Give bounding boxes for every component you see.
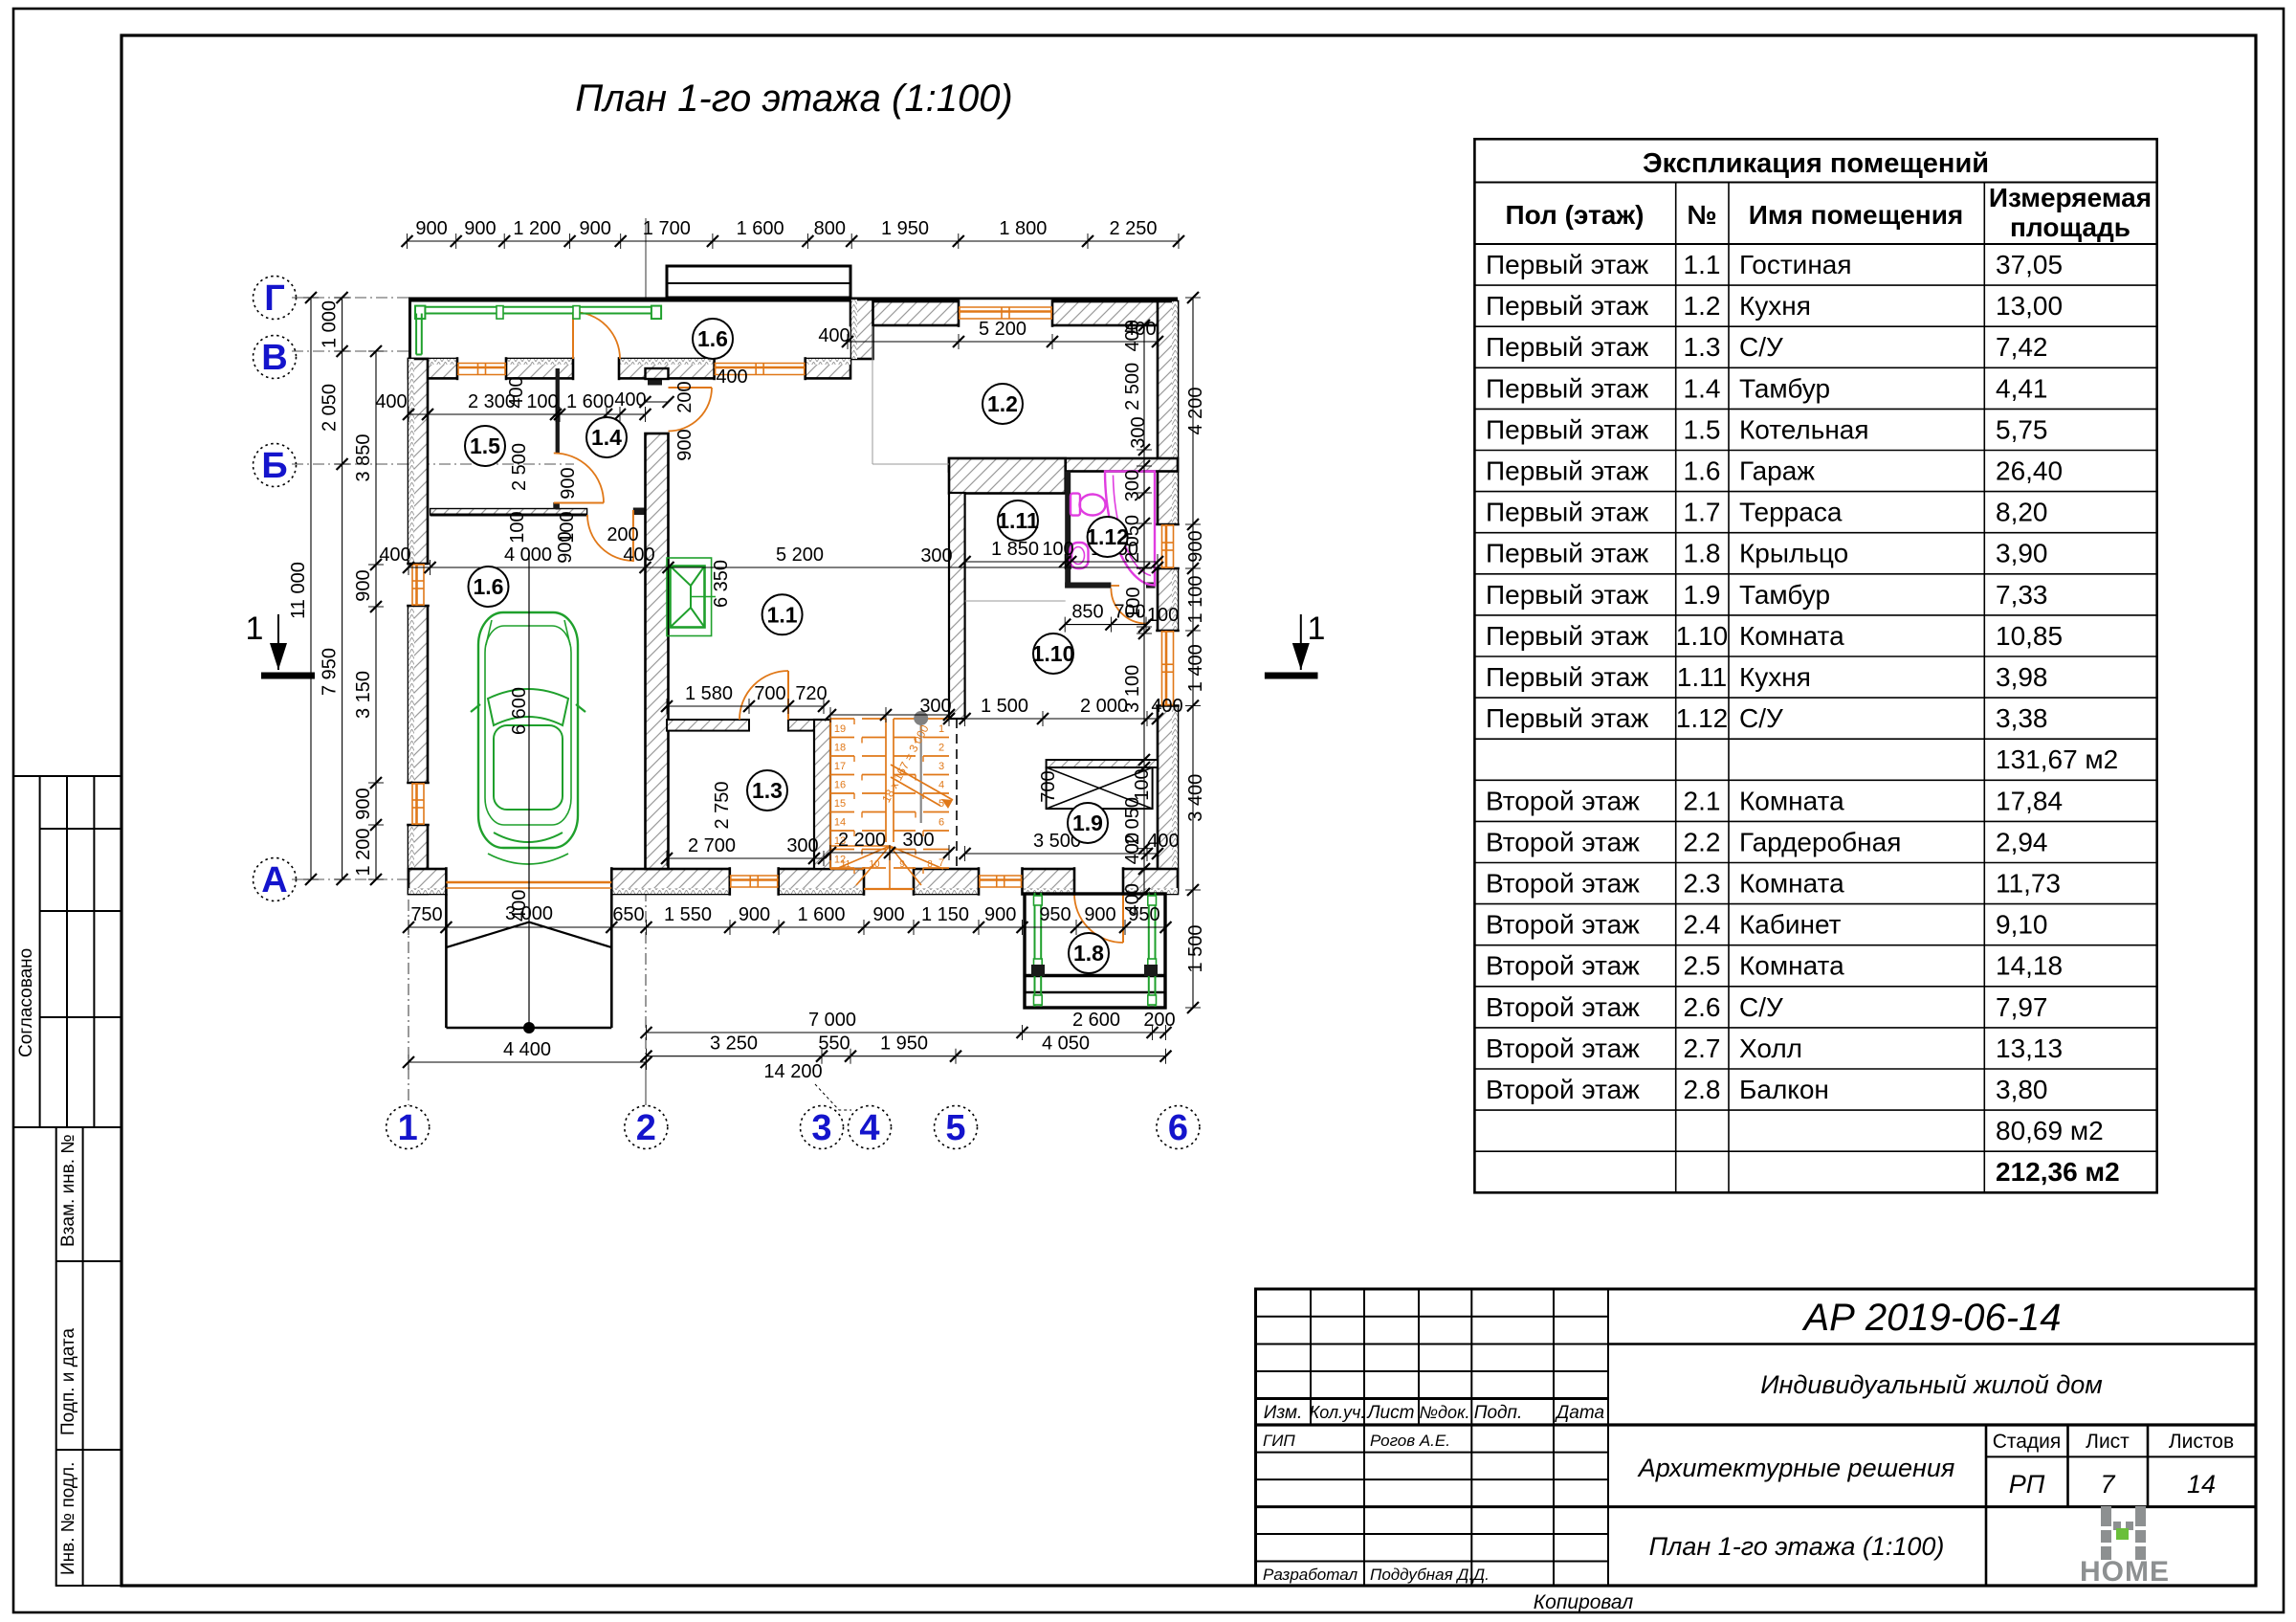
svg-text:План 1-го этажа (1:100): План 1-го этажа (1:100) (1649, 1532, 1945, 1561)
svg-text:Пол (этаж): Пол (этаж) (1506, 200, 1645, 230)
svg-text:1 200: 1 200 (513, 218, 561, 239)
svg-text:2.2: 2.2 (1684, 827, 1721, 856)
svg-text:300: 300 (1128, 416, 1149, 448)
svg-text:14: 14 (2187, 1470, 2216, 1499)
svg-text:300: 300 (920, 545, 952, 567)
svg-text:Первый этаж: Первый этаж (1486, 250, 1648, 279)
svg-text:1.1: 1.1 (767, 602, 798, 627)
svg-text:100: 100 (1042, 539, 1073, 560)
svg-text:300: 300 (919, 696, 951, 717)
svg-text:Первый этаж: Первый этаж (1486, 703, 1648, 733)
svg-text:400: 400 (614, 389, 646, 411)
svg-text:Подп.: Подп. (1474, 1403, 1523, 1423)
svg-text:15: 15 (834, 798, 846, 810)
svg-text:850: 850 (1071, 602, 1103, 623)
svg-text:900: 900 (415, 218, 447, 239)
svg-text:80,69 м2: 80,69 м2 (1996, 1116, 2104, 1145)
svg-text:1.3: 1.3 (752, 778, 783, 803)
svg-text:300: 300 (902, 830, 934, 851)
svg-text:16: 16 (834, 780, 846, 791)
svg-text:2.3: 2.3 (1684, 869, 1721, 899)
svg-text:3,90: 3,90 (1996, 539, 2048, 568)
svg-text:300: 300 (786, 835, 818, 856)
svg-text:Г: Г (264, 278, 285, 319)
svg-text:900: 900 (674, 429, 695, 460)
svg-text:400: 400 (623, 544, 654, 566)
svg-text:С/У: С/У (1739, 992, 1783, 1022)
svg-text:212,36 м2: 212,36 м2 (1996, 1157, 2120, 1187)
svg-text:Второй этаж: Второй этаж (1486, 1033, 1640, 1063)
svg-text:11,73: 11,73 (1996, 869, 2061, 899)
svg-text:1 000: 1 000 (320, 300, 341, 348)
svg-text:Первый этаж: Первый этаж (1486, 498, 1648, 527)
svg-text:Лист: Лист (1366, 1403, 1415, 1423)
svg-text:Копировал: Копировал (1534, 1591, 1634, 1613)
svg-text:3 850: 3 850 (353, 433, 374, 481)
svg-text:1.6: 1.6 (1684, 456, 1721, 486)
svg-text:Комната: Комната (1739, 869, 1844, 899)
svg-text:1.12: 1.12 (1676, 703, 1729, 733)
svg-text:3,98: 3,98 (1996, 662, 2048, 692)
svg-text:700: 700 (754, 683, 785, 704)
svg-text:2,94: 2,94 (1996, 827, 2048, 856)
svg-text:900: 900 (353, 788, 374, 819)
svg-text:300: 300 (1122, 470, 1143, 501)
svg-text:550: 550 (818, 1033, 850, 1055)
svg-text:1: 1 (246, 611, 264, 647)
svg-text:9: 9 (899, 859, 905, 870)
svg-text:Первый этаж: Первый этаж (1486, 332, 1648, 362)
svg-text:1 850: 1 850 (991, 539, 1039, 560)
svg-text:100: 100 (1123, 587, 1144, 618)
svg-text:1.10: 1.10 (1032, 641, 1075, 666)
svg-text:Комната: Комната (1739, 951, 1844, 981)
svg-text:650: 650 (612, 904, 644, 925)
svg-text:1 800: 1 800 (999, 218, 1047, 239)
svg-text:2.1: 2.1 (1684, 786, 1721, 815)
svg-text:900: 900 (353, 569, 374, 601)
svg-text:Гостиная: Гостиная (1739, 250, 1852, 279)
svg-text:Второй этаж: Второй этаж (1486, 827, 1640, 856)
svg-text:АР 2019-06-14: АР 2019-06-14 (1801, 1297, 2061, 1339)
svg-text:8: 8 (927, 859, 933, 870)
svg-text:37,05: 37,05 (1996, 250, 2063, 279)
svg-text:1.2: 1.2 (1684, 291, 1721, 321)
svg-text:2.4: 2.4 (1684, 910, 1721, 940)
svg-text:Комната: Комната (1739, 621, 1844, 651)
svg-text:400: 400 (1124, 319, 1156, 340)
svg-text:Листов: Листов (2169, 1431, 2234, 1453)
svg-text:3,80: 3,80 (1996, 1075, 2048, 1104)
svg-text:17,84: 17,84 (1996, 786, 2063, 815)
svg-text:5 200: 5 200 (776, 544, 824, 566)
svg-text:11: 11 (841, 859, 851, 870)
svg-text:950: 950 (1039, 904, 1071, 925)
svg-text:1 600: 1 600 (737, 218, 784, 239)
svg-text:Поддубная Д.Д.: Поддубная Д.Д. (1370, 1566, 1490, 1584)
svg-text:1 500: 1 500 (981, 696, 1028, 717)
svg-text:№: № (1687, 200, 1716, 230)
svg-text:5 200: 5 200 (979, 319, 1027, 340)
svg-text:4,41: 4,41 (1996, 373, 2048, 403)
svg-text:Взам. инв. №: Взам. инв. № (58, 1134, 78, 1247)
svg-text:Первый этаж: Первый этаж (1486, 291, 1648, 321)
svg-text:А: А (261, 860, 287, 900)
svg-text:100: 100 (526, 391, 558, 412)
svg-text:2 750: 2 750 (712, 781, 733, 829)
svg-text:Балкон: Балкон (1739, 1075, 1829, 1104)
svg-text:18: 18 (834, 743, 846, 754)
svg-text:400: 400 (375, 391, 407, 412)
svg-text:3 250: 3 250 (710, 1033, 758, 1055)
svg-text:Подп. и дата: Подп. и дата (58, 1328, 78, 1435)
svg-text:1 150: 1 150 (921, 904, 969, 925)
svg-text:2 700: 2 700 (688, 835, 736, 856)
svg-text:900: 900 (872, 904, 904, 925)
svg-text:2 600: 2 600 (1072, 1010, 1120, 1031)
svg-text:3 400: 3 400 (1185, 774, 1206, 822)
svg-text:Холл: Холл (1739, 1033, 1802, 1063)
svg-text:2 250: 2 250 (1109, 218, 1157, 239)
svg-text:2 500: 2 500 (1122, 363, 1143, 411)
svg-text:900: 900 (579, 218, 610, 239)
svg-text:Экспликация помещений: Экспликация помещений (1643, 148, 1989, 179)
svg-text:1 200: 1 200 (353, 828, 374, 876)
svg-text:10: 10 (869, 859, 880, 870)
svg-text:10,85: 10,85 (1996, 621, 2063, 651)
svg-text:1 550: 1 550 (664, 904, 712, 925)
svg-text:1 700: 1 700 (643, 218, 691, 239)
svg-text:2.7: 2.7 (1684, 1033, 1721, 1063)
svg-text:План 1-го этажа (1:100): План 1-го этажа (1:100) (575, 78, 1013, 120)
svg-text:400: 400 (379, 544, 410, 566)
svg-text:РП: РП (2009, 1470, 2045, 1499)
svg-text:Первый этаж: Первый этаж (1486, 662, 1648, 692)
svg-text:Гардеробная: Гардеробная (1739, 827, 1901, 856)
svg-text:200: 200 (607, 524, 638, 545)
svg-text:400: 400 (1147, 831, 1179, 852)
svg-text:1.5: 1.5 (1684, 414, 1721, 444)
svg-text:1.11: 1.11 (1677, 662, 1727, 692)
svg-text:Стадия: Стадия (1993, 1431, 2062, 1453)
svg-text:1 600: 1 600 (797, 904, 845, 925)
svg-text:131,67 м2: 131,67 м2 (1996, 744, 2118, 774)
svg-text:1 950: 1 950 (881, 218, 929, 239)
svg-text:Первый этаж: Первый этаж (1486, 456, 1648, 486)
svg-text:700: 700 (1038, 770, 1059, 802)
svg-text:900: 900 (464, 218, 496, 239)
svg-text:Второй этаж: Второй этаж (1486, 786, 1640, 815)
svg-text:Измеряемая: Измеряемая (1989, 183, 2152, 212)
svg-text:900: 900 (555, 531, 576, 563)
svg-text:2: 2 (938, 743, 944, 754)
svg-text:400: 400 (1122, 833, 1143, 864)
svg-text:Согласовано: Согласовано (16, 948, 36, 1057)
svg-text:1.4: 1.4 (1684, 373, 1721, 403)
svg-text:1: 1 (1308, 611, 1326, 647)
svg-text:Разработал: Разработал (1263, 1566, 1358, 1584)
svg-text:400: 400 (716, 367, 747, 388)
svg-text:3,38: 3,38 (1996, 703, 2048, 733)
svg-text:Имя помещения: Имя помещения (1749, 200, 1964, 230)
svg-text:200: 200 (1143, 1010, 1175, 1031)
svg-text:Второй этаж: Второй этаж (1486, 992, 1640, 1022)
svg-text:1.9: 1.9 (1684, 580, 1721, 610)
svg-text:Тамбур: Тамбур (1739, 373, 1830, 403)
svg-text:7,42: 7,42 (1996, 332, 2048, 362)
svg-text:950: 950 (1128, 904, 1159, 925)
svg-text:Изм.: Изм. (1264, 1403, 1303, 1423)
svg-text:Лист: Лист (2086, 1431, 2130, 1453)
svg-text:С/У: С/У (1739, 703, 1783, 733)
svg-text:6 350: 6 350 (711, 560, 732, 608)
svg-text:С/У: С/У (1739, 332, 1783, 362)
svg-text:1 600: 1 600 (566, 391, 614, 412)
svg-text:Котельная: Котельная (1739, 414, 1869, 444)
svg-text:1 500: 1 500 (1185, 924, 1206, 972)
svg-text:1.7: 1.7 (1684, 498, 1721, 527)
svg-text:2 050: 2 050 (320, 384, 341, 432)
svg-text:2.5: 2.5 (1684, 951, 1721, 981)
svg-text:Первый этаж: Первый этаж (1486, 580, 1648, 610)
svg-text:Второй этаж: Второй этаж (1486, 1075, 1640, 1104)
svg-text:Первый этаж: Первый этаж (1486, 373, 1648, 403)
svg-text:13,13: 13,13 (1996, 1033, 2063, 1063)
svg-text:Крыльцо: Крыльцо (1739, 539, 1848, 568)
svg-text:900: 900 (1185, 530, 1206, 562)
svg-text:6: 6 (938, 817, 944, 829)
svg-text:26,40: 26,40 (1996, 456, 2063, 486)
svg-text:7,97: 7,97 (1996, 992, 2048, 1022)
svg-text:9,10: 9,10 (1996, 910, 2048, 940)
svg-text:1.6: 1.6 (697, 326, 728, 351)
svg-text:19: 19 (834, 723, 846, 735)
svg-text:Кабинет: Кабинет (1739, 910, 1842, 940)
svg-text:1 100: 1 100 (1185, 575, 1206, 623)
svg-text:ГИП: ГИП (1263, 1432, 1295, 1450)
svg-text:14,18: 14,18 (1996, 951, 2063, 981)
svg-text:7: 7 (938, 857, 944, 869)
svg-text:Индивидуальный жилой дом: Индивидуальный жилой дом (1760, 1370, 2103, 1399)
svg-text:720: 720 (795, 683, 827, 704)
svg-text:7: 7 (2100, 1470, 2115, 1499)
svg-text:Архитектурные решения: Архитектурные решения (1637, 1454, 1955, 1482)
svg-text:2 000: 2 000 (1080, 696, 1128, 717)
svg-text:2.6: 2.6 (1684, 992, 1721, 1022)
svg-text:3 000: 3 000 (505, 903, 553, 924)
svg-text:Второй этаж: Второй этаж (1486, 951, 1640, 981)
svg-text:3 150: 3 150 (353, 671, 374, 719)
svg-text:Первый этаж: Первый этаж (1486, 414, 1648, 444)
svg-text:1 950: 1 950 (880, 1033, 928, 1055)
svg-text:4 000: 4 000 (504, 544, 552, 566)
svg-text:Терраса: Терраса (1739, 498, 1843, 527)
svg-text:200: 200 (674, 381, 695, 412)
svg-text:1.6: 1.6 (474, 574, 504, 599)
svg-text:800: 800 (814, 218, 846, 239)
svg-text:1: 1 (398, 1108, 418, 1148)
svg-text:Второй этаж: Второй этаж (1486, 910, 1640, 940)
svg-text:1.4: 1.4 (591, 425, 622, 450)
svg-text:750: 750 (410, 904, 442, 925)
svg-text:Рогов А.Е.: Рогов А.Е. (1370, 1432, 1450, 1450)
svg-text:8,20: 8,20 (1996, 498, 2048, 527)
svg-text:900: 900 (1084, 904, 1115, 925)
svg-text:100: 100 (507, 511, 528, 543)
svg-text:№док.: №док. (1420, 1403, 1470, 1422)
svg-text:2: 2 (636, 1108, 656, 1148)
svg-text:1.1: 1.1 (1684, 250, 1721, 279)
svg-text:Дата: Дата (1555, 1403, 1604, 1423)
svg-text:Кол.уч.: Кол.уч. (1310, 1403, 1366, 1422)
svg-text:4: 4 (938, 780, 944, 791)
svg-text:4: 4 (859, 1108, 879, 1148)
svg-text:1.9: 1.9 (1072, 811, 1103, 835)
svg-text:1.8: 1.8 (1684, 539, 1721, 568)
svg-text:площадь: площадь (2010, 212, 2130, 242)
svg-text:5: 5 (945, 1108, 965, 1148)
svg-text:1: 1 (938, 723, 944, 735)
svg-text:400: 400 (1151, 696, 1182, 717)
svg-text:7 950: 7 950 (320, 648, 341, 696)
svg-text:2.8: 2.8 (1684, 1075, 1721, 1104)
svg-text:1 580: 1 580 (685, 683, 733, 704)
svg-text:14 200: 14 200 (763, 1061, 822, 1082)
svg-text:11 000: 11 000 (288, 562, 309, 619)
svg-text:1 400: 1 400 (1185, 644, 1206, 692)
svg-text:4 200: 4 200 (1185, 387, 1206, 434)
svg-text:7 000: 7 000 (808, 1010, 856, 1031)
svg-text:5,75: 5,75 (1996, 414, 2048, 444)
svg-text:В: В (261, 338, 287, 378)
svg-text:1.5: 1.5 (470, 433, 500, 458)
svg-text:900: 900 (984, 904, 1016, 925)
svg-text:900: 900 (558, 467, 579, 499)
svg-text:1.10: 1.10 (1676, 621, 1729, 651)
svg-text:13,00: 13,00 (1996, 291, 2063, 321)
svg-text:6: 6 (1168, 1108, 1188, 1148)
svg-text:1.3: 1.3 (1684, 332, 1721, 362)
svg-text:100: 100 (1132, 768, 1153, 800)
svg-text:Первый этаж: Первый этаж (1486, 621, 1648, 651)
svg-text:6 600: 6 600 (509, 687, 530, 735)
svg-text:400: 400 (506, 376, 527, 408)
svg-text:3: 3 (811, 1108, 831, 1148)
svg-text:1.2: 1.2 (987, 391, 1018, 416)
svg-text:Тамбур: Тамбур (1739, 580, 1830, 610)
svg-text:14: 14 (834, 817, 846, 829)
svg-text:17: 17 (834, 761, 846, 772)
svg-text:7,33: 7,33 (1996, 580, 2048, 610)
svg-text:Первый этаж: Первый этаж (1486, 539, 1648, 568)
svg-text:Гараж: Гараж (1739, 456, 1815, 486)
svg-text:2 500: 2 500 (509, 443, 530, 491)
svg-text:Инв. № подл.: Инв. № подл. (58, 1462, 78, 1575)
svg-text:Комната: Комната (1739, 786, 1844, 815)
svg-text:2 200: 2 200 (838, 830, 886, 851)
svg-text:3: 3 (938, 761, 944, 772)
svg-text:Второй этаж: Второй этаж (1486, 869, 1640, 899)
svg-text:1.11: 1.11 (997, 508, 1039, 533)
svg-text:4 050: 4 050 (1042, 1033, 1090, 1055)
svg-text:4 400: 4 400 (503, 1039, 551, 1060)
svg-text:Кухня: Кухня (1739, 291, 1811, 321)
svg-text:900: 900 (739, 904, 770, 925)
svg-text:HOME: HOME (2080, 1556, 2170, 1588)
svg-text:400: 400 (818, 325, 850, 346)
svg-text:Кухня: Кухня (1739, 662, 1811, 692)
svg-text:100: 100 (1147, 605, 1179, 626)
svg-text:1.12: 1.12 (1086, 524, 1129, 549)
svg-text:1.8: 1.8 (1073, 941, 1104, 966)
svg-text:Б: Б (261, 446, 287, 486)
